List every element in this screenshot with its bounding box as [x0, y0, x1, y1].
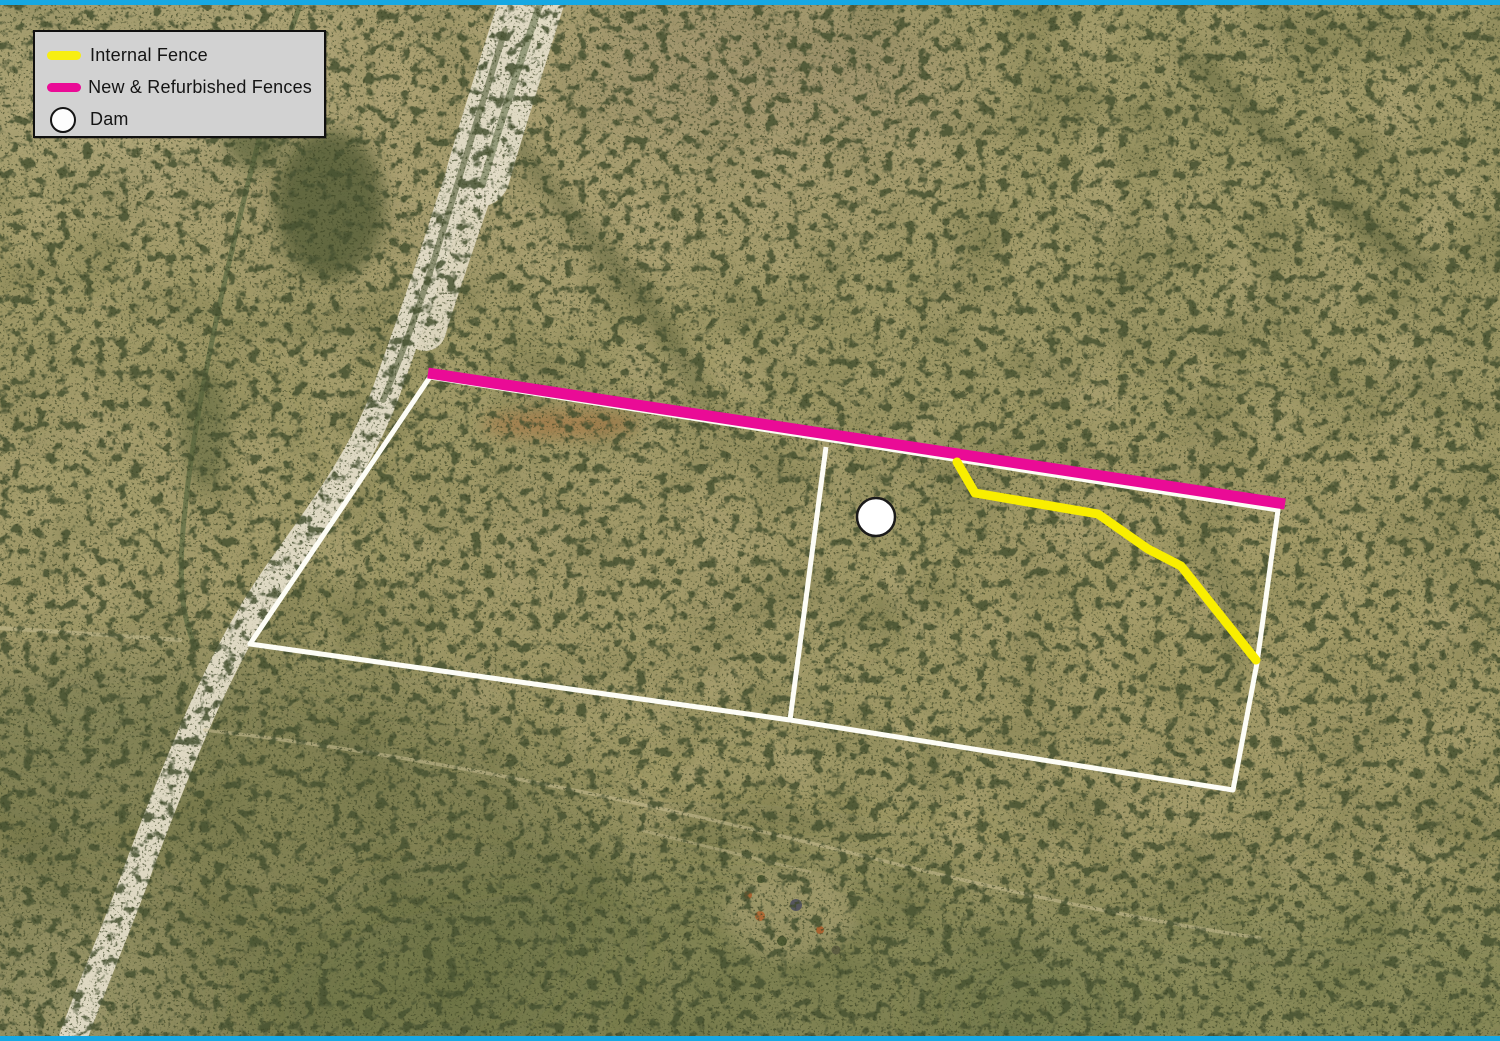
- legend-item-internal-fence: Internal Fence: [47, 39, 312, 71]
- legend-label-internal-fence: Internal Fence: [90, 45, 208, 66]
- dam-swatch-icon: [50, 107, 76, 133]
- legend-label-new-refurbished-fences: New & Refurbished Fences: [88, 77, 312, 98]
- new-refurbished-fences-swatch-icon: [47, 83, 81, 92]
- dam-marker: [857, 498, 895, 536]
- map-border-top: [0, 0, 1500, 5]
- legend-item-new-refurbished-fences: New & Refurbished Fences: [47, 71, 312, 103]
- legend-label-dam: Dam: [90, 109, 129, 130]
- map-figure: Internal Fence New & Refurbished Fences …: [0, 0, 1500, 1041]
- map-legend: Internal Fence New & Refurbished Fences …: [33, 30, 326, 138]
- map-border-bottom: [0, 1036, 1500, 1041]
- internal-fence-swatch-icon: [47, 51, 81, 60]
- aerial-map: [0, 0, 1500, 1041]
- legend-item-dam: Dam: [47, 104, 312, 136]
